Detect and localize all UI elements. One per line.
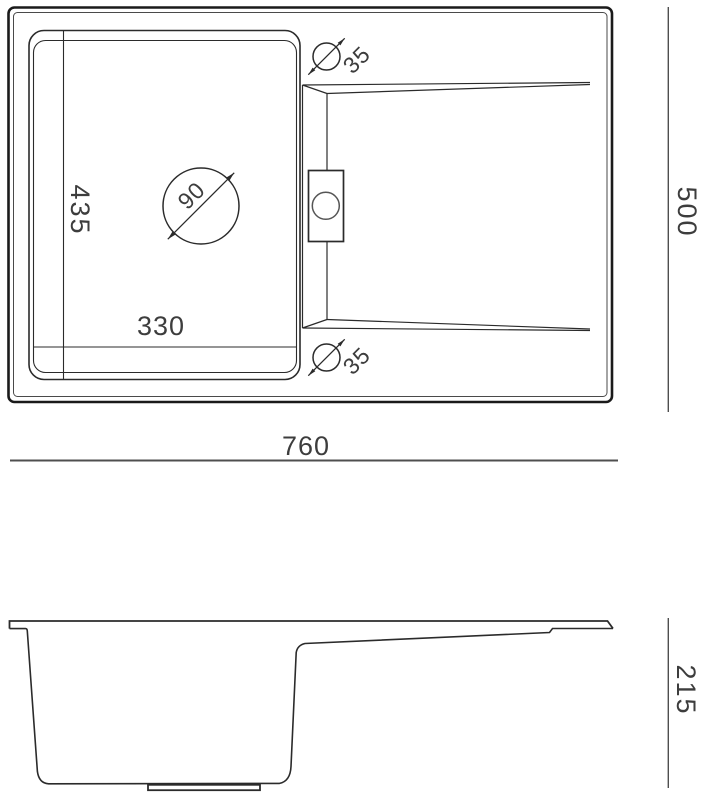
bowl-profile [10,629,614,784]
flange-profile [10,621,614,629]
dim-overall-depth: 500 [672,186,702,237]
dimension-overall-depth: 500 [668,7,702,412]
faucet-mount [309,171,344,242]
dim-height: 215 [671,664,701,715]
sink-technical-drawing: 90 35 [0,0,704,800]
top-view: 90 35 [9,8,613,403]
dimension-height: 215 [668,618,701,788]
dim-overall-width: 760 [282,431,330,461]
dim-bowl-width: 330 [137,311,185,341]
drain-fitting [148,785,260,790]
dimension-overall-width: 760 [10,431,618,461]
drawing-svg: 90 35 [0,0,704,800]
side-view [10,621,614,790]
dim-bowl-depth: 435 [65,184,95,235]
faucet-plate [309,171,344,242]
